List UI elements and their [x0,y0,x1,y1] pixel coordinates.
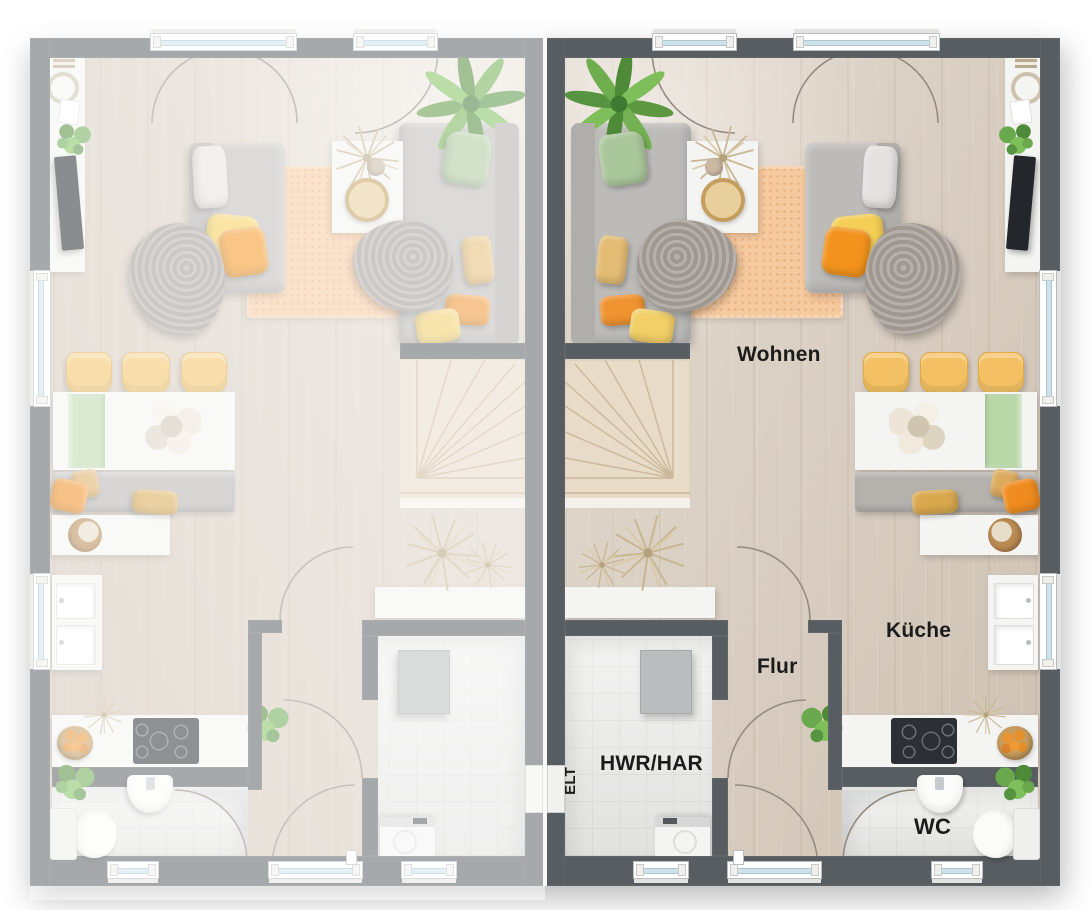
wall-living-stub [565,343,690,359]
plant-small-tv [55,120,93,158]
flower-sprigs [79,690,129,740]
label-elt: ELT [562,767,580,795]
dried-plant-small [459,536,517,594]
wall-hall-utility [565,620,728,636]
window-wc [931,861,983,879]
wall-party [525,38,545,886]
washer-door [673,830,697,854]
label-flur: Flur [757,654,797,680]
stairs [565,360,690,508]
decor-bowl [988,518,1022,552]
pillow-orange-2 [820,225,872,279]
table-runner [68,394,105,468]
sofa-corner-backrest [495,123,519,345]
unit-left [30,38,545,886]
wall-hall-kitchen [248,633,262,790]
dining-chair [920,352,968,394]
label-wc: WC [914,814,951,840]
wall-hall-stub [808,620,842,633]
duplex-floorplan: Wohnen Küche Flur HWR/HAR ELT WC [30,38,1060,886]
wall-party [545,38,565,886]
wall-utility-hall-lower [362,778,378,856]
toilet-tank [1013,808,1040,860]
washer-door [393,830,417,854]
pillow-orange-2 [218,225,270,279]
wall-hall-kitchen [828,633,842,790]
floorplan-canvas: Wohnen Küche Flur HWR/HAR ELT WC [0,0,1090,910]
plant-wc [993,760,1037,804]
sink-basin-2 [994,625,1034,665]
wc-faucet [935,777,944,790]
sink-basin-2 [56,625,96,665]
label-kueche: Küche [886,618,951,644]
plant-small-tv [997,120,1035,158]
dining-chair [66,352,112,394]
heat-pump [640,650,692,714]
faucet-knob-2 [59,640,64,645]
vase [705,158,723,176]
flower-sprigs [961,690,1011,740]
window-wc [107,861,159,879]
dining-chair [978,352,1024,394]
dining-chair [122,352,170,394]
wall-utility-hall-lower [712,778,728,856]
washer-controls [663,818,677,824]
stairs [400,360,525,508]
plant-wc [53,760,97,804]
door-handle [733,850,744,865]
party-wall-seam [543,38,547,886]
toilet-tank [50,808,77,860]
wall-living-stub [400,343,525,359]
electrical-box [525,765,543,813]
cooktop [891,718,957,764]
terrace-door-double [150,33,297,51]
pillow-gold [461,235,496,286]
window-living [33,270,51,407]
cooktop [133,718,199,764]
window-utility [633,861,689,879]
toilet-bowl [973,810,1017,858]
faucet-knob-2 [1026,640,1031,645]
table-runner [985,394,1022,468]
decor-tray [345,178,389,222]
wall-hall-stub [248,620,282,633]
heat-pump [398,650,450,714]
terrace-door-double [793,33,940,51]
cushion-white [191,145,228,209]
wall-hall-utility [362,620,525,636]
flower-centerpiece [145,400,201,456]
cushion-white [861,145,898,209]
label-hwr-har: HWR/HAR [600,751,703,777]
window-kitchen [33,573,51,670]
window-living [1039,270,1057,407]
pillow-mustard [911,488,959,515]
pillow-gold [595,235,630,286]
terrace-door-single [652,33,737,51]
faucet-knob [1026,598,1031,603]
decor-bowl [68,518,102,552]
window-kitchen [1039,573,1057,670]
wall-utility-hall-upper [712,636,728,700]
dining-chair [863,352,909,394]
washer-controls [413,818,427,824]
vase [367,158,385,176]
pillow-yellow [628,307,676,346]
wc-faucet [146,777,155,790]
terrace-door-single [353,33,438,51]
pillow-yellow [414,307,462,346]
decor-tray [701,178,745,222]
label-wohnen: Wohnen [737,342,821,368]
wall-right [30,38,50,886]
pillow-green [597,130,650,188]
pillow-green [441,130,494,188]
toilet-bowl [73,810,117,858]
dried-plant-small [573,536,631,594]
faucet-knob [59,598,64,603]
sofa-corner-backrest [571,123,595,345]
unit-right: Wohnen Küche Flur HWR/HAR ELT WC [545,38,1060,886]
door-handle [346,850,357,865]
flower-centerpiece [889,400,945,456]
window-utility [401,861,457,879]
wall-utility-hall-upper [362,636,378,700]
pillow-mustard [131,488,179,515]
wall-right [1040,38,1060,886]
dining-chair [181,352,227,394]
